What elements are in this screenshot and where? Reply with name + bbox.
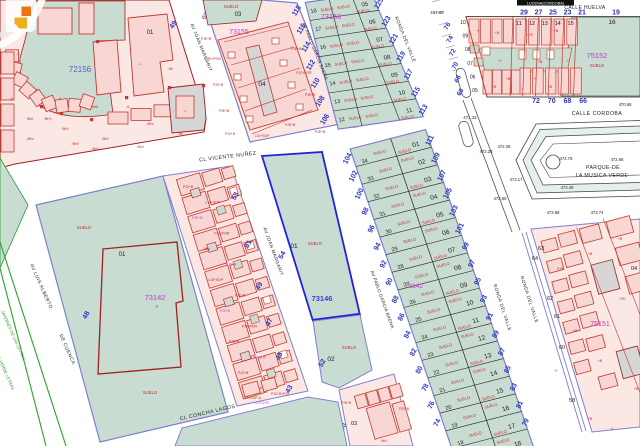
svg-text:PJ3+B: PJ3+B (226, 263, 237, 267)
svg-text:PJE+B: PJE+B (235, 294, 246, 298)
svg-text:+B: +B (495, 31, 500, 35)
svg-text:+I: +I (611, 427, 614, 431)
svg-text:PJ4+POR: PJ4+POR (242, 325, 258, 329)
svg-text:P: P (156, 304, 159, 309)
svg-text:05: 05 (472, 88, 478, 94)
svg-text:473.74: 473.74 (591, 210, 604, 215)
svg-text:PJ2+B: PJ2+B (183, 185, 194, 189)
svg-text:+B: +B (492, 85, 497, 89)
svg-text:473.17: 473.17 (510, 177, 523, 182)
svg-text:SUELO: SUELO (224, 4, 239, 9)
svg-text:L10+SOP: L10+SOP (208, 278, 224, 282)
svg-text:73156: 73156 (321, 12, 342, 21)
svg-text:-9bV: -9bV (71, 142, 79, 146)
svg-text:72156: 72156 (69, 65, 92, 74)
svg-text:73146: 73146 (312, 294, 333, 303)
svg-text:PJE+B: PJE+B (201, 37, 212, 41)
svg-text:LA MUSICA VERDE: LA MUSICA VERDE (576, 173, 629, 179)
svg-text:SUELO: SUELO (342, 345, 357, 350)
svg-text:9bV: 9bV (381, 439, 388, 443)
svg-text:62: 62 (547, 296, 553, 302)
svg-text:CALLE CORDOBA: CALLE CORDOBA (572, 111, 623, 117)
svg-text:58: 58 (569, 398, 575, 404)
svg-text:-9bV: -9bV (26, 137, 34, 141)
svg-text:01: 01 (119, 252, 126, 258)
svg-text:472.36: 472.36 (498, 144, 511, 149)
svg-text:+B: +B (618, 237, 623, 241)
svg-text:PJ2+B: PJ2+B (238, 371, 249, 375)
svg-text:PJE+B: PJE+B (305, 93, 316, 97)
svg-text:66: 66 (579, 98, 587, 105)
svg-text:75151: 75151 (590, 321, 610, 328)
svg-text:PJ5+B: PJ5+B (341, 401, 352, 405)
svg-text:+B: +B (506, 77, 511, 81)
svg-text:LUCENA(CORDOBA): LUCENA(CORDOBA) (527, 2, 565, 6)
svg-text:19: 19 (612, 10, 620, 17)
svg-text:A-PJ2+B: A-PJ2+B (255, 401, 269, 405)
svg-text:73155: 73155 (229, 29, 249, 36)
svg-text:L10+SOP: L10+SOP (255, 134, 271, 138)
svg-text:02: 02 (327, 356, 335, 363)
svg-text:64: 64 (532, 256, 538, 262)
svg-text:SUELO: SUELO (308, 241, 323, 246)
svg-text:01: 01 (147, 30, 154, 36)
svg-text:+I: +I (567, 59, 570, 63)
svg-text:04: 04 (258, 81, 266, 88)
svg-text:PJE+B: PJE+B (229, 340, 240, 344)
svg-text:03: 03 (351, 421, 357, 427)
svg-text:PJE+B: PJE+B (315, 130, 326, 134)
svg-text:b9b: b9b (92, 105, 98, 109)
svg-text:+I+B: +I+B (556, 267, 564, 271)
svg-text:PJE+B: PJE+B (219, 109, 230, 113)
svg-text:467.66: 467.66 (430, 10, 444, 15)
svg-text:08: 08 (465, 47, 471, 53)
svg-text:PJE+POR: PJE+POR (205, 57, 221, 61)
svg-text:PJ2+POR: PJ2+POR (214, 232, 230, 236)
svg-text:+B: +B (634, 387, 639, 391)
svg-text:10: 10 (460, 20, 466, 26)
svg-text:-V-: -V- (10, 97, 15, 101)
svg-text:PJE+B: PJE+B (192, 216, 203, 220)
svg-text:472.66: 472.66 (611, 157, 624, 162)
svg-text:SUELO: SUELO (590, 63, 605, 68)
svg-text:L10+SOP: L10+SOP (205, 201, 221, 205)
svg-text:+I: +I (499, 59, 502, 63)
svg-text:04: 04 (631, 266, 637, 272)
svg-text:+B: +B (588, 417, 593, 421)
svg-text:06: 06 (470, 74, 476, 80)
svg-text:+B: +B (588, 252, 593, 256)
svg-text:-9b: -9b (177, 132, 182, 136)
svg-text:01: 01 (290, 243, 298, 250)
svg-text:-9bV: -9bV (203, 247, 211, 251)
svg-text:+B: +B (538, 60, 543, 64)
svg-text:+B: +B (573, 329, 578, 333)
svg-text:PJ2+B: PJ2+B (399, 407, 410, 411)
svg-text:473.68: 473.68 (547, 210, 560, 215)
svg-text:SUELO: SUELO (77, 225, 92, 230)
svg-text:-9bV: -9bV (91, 147, 99, 151)
svg-text:11: 11 (516, 21, 522, 27)
svg-text:73142: 73142 (145, 293, 166, 302)
svg-text:-9b: -9b (167, 67, 172, 71)
svg-text:+B: +B (548, 85, 553, 89)
svg-text:61: 61 (554, 314, 560, 320)
svg-text:PJ2+B: PJ2+B (225, 132, 236, 136)
svg-text:68: 68 (564, 98, 572, 105)
svg-text:-9bV: -9bV (146, 122, 154, 126)
svg-text:PJ2+B: PJ2+B (220, 309, 231, 313)
svg-text:I+B: I+B (619, 297, 625, 301)
svg-text:75152: 75152 (587, 51, 608, 60)
svg-text:-9bV: -9bV (61, 127, 69, 131)
svg-text:09: 09 (463, 34, 469, 40)
svg-text:472.38: 472.38 (480, 149, 493, 154)
svg-text:12: 12 (529, 21, 535, 27)
svg-text:SUELO: SUELO (143, 390, 158, 395)
svg-text:PJ2+B: PJ2+B (213, 83, 224, 87)
svg-text:I: I (522, 87, 523, 91)
svg-text:+B: +B (598, 359, 603, 363)
svg-text:472.76: 472.76 (560, 156, 573, 161)
svg-text:15: 15 (568, 21, 574, 27)
svg-text:72: 72 (532, 98, 540, 105)
svg-text:L10+SOP: L10+SOP (251, 356, 267, 360)
svg-text:14: 14 (555, 21, 561, 27)
svg-text:9b+I: 9b+I (44, 117, 51, 121)
svg-text:13: 13 (542, 21, 548, 27)
svg-text:73142: 73142 (405, 283, 423, 290)
svg-text:16: 16 (608, 19, 616, 26)
svg-text:27: 27 (535, 10, 543, 17)
svg-text:21: 21 (578, 10, 586, 17)
svg-text:23: 23 (564, 10, 572, 17)
svg-text:+I: +I (555, 369, 558, 373)
svg-text:29: 29 (520, 10, 528, 17)
svg-text:9bV: 9bV (27, 117, 34, 121)
svg-text:+B: +B (554, 29, 559, 33)
svg-text:07: 07 (467, 61, 473, 67)
svg-text:70: 70 (548, 98, 556, 105)
svg-text:L10+SOP-A: L10+SOP-A (243, 396, 262, 400)
svg-text:470.66: 470.66 (619, 102, 632, 107)
svg-text:I+B: I+B (527, 33, 533, 37)
svg-text:+I: +I (477, 29, 480, 33)
svg-text:63: 63 (538, 246, 544, 252)
svg-text:473.66: 473.66 (494, 196, 507, 201)
svg-text:PJE+B: PJE+B (285, 123, 296, 127)
svg-text:-9bV: -9bV (136, 145, 144, 149)
svg-text:473.49: 473.49 (561, 185, 574, 190)
svg-text:+I: +I (534, 77, 537, 81)
svg-text:-9bV: -9bV (101, 137, 109, 141)
svg-text:03: 03 (235, 12, 242, 18)
svg-text:PARQUE-DE: PARQUE-DE (586, 165, 620, 171)
svg-text:60: 60 (559, 345, 565, 351)
svg-text:25: 25 (549, 10, 557, 17)
